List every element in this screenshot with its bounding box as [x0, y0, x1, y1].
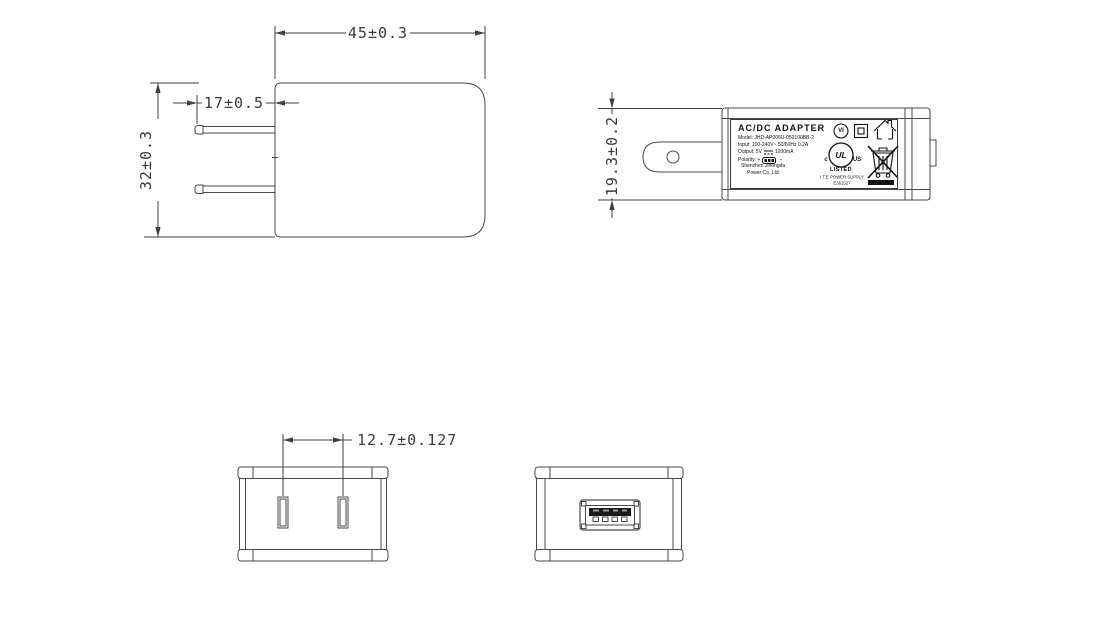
label-input-line: Input: 100-240V~ 50/60Hz 0.2A	[738, 143, 808, 148]
bottom-view-pins	[238, 434, 388, 561]
side-pin	[643, 142, 722, 172]
pin-slot-right	[338, 497, 348, 528]
ul-us-text: US	[853, 157, 861, 163]
bottom-body	[240, 479, 387, 550]
usb-view-top-cap	[535, 467, 683, 479]
usb-port	[580, 500, 640, 530]
ul-c-text: c	[824, 157, 827, 163]
side-pin-hole	[667, 151, 679, 163]
adapter-dimension-drawing: 45±0.3 17±0.5 32±0.3 19.3±0.2 12.7±0.127…	[0, 0, 1100, 621]
label-output-suffix: 1000mA	[775, 150, 794, 155]
label-company-line1: Shenzhen Jihongda	[741, 164, 785, 169]
dim-pin-spacing-12: 12.7±0.127	[355, 431, 459, 449]
label-company-line2: Power Co.,Ltd.	[747, 171, 780, 176]
dim-height-32: 32±0.3	[137, 128, 155, 192]
dimension-pin-spacing	[283, 434, 352, 496]
bottom-view-usb	[535, 467, 683, 561]
label-output-line: Output: 5V 1000mA	[738, 150, 794, 155]
dim-thickness-19: 19.3±0.2	[603, 114, 621, 198]
label-company-text2: Power Co.,Ltd.	[747, 171, 780, 176]
bottom-body-inner-lines	[246, 479, 382, 550]
ul-logo-text: UL	[835, 150, 846, 160]
label-model-text: Model: JHD-AP006U-050100BB-2	[738, 136, 814, 141]
dim-pin-17: 17±0.5	[202, 94, 266, 112]
label-model-line: Model: JHD-AP006U-050100BB-2	[738, 136, 814, 141]
ul-listed-text: LISTED	[830, 167, 852, 173]
front-pin-bottom	[203, 186, 275, 193]
front-view-body	[275, 83, 485, 237]
ul-category-text: I.T.E POWER SUPPLY	[820, 175, 864, 180]
label-title: AC/DC ADAPTER	[738, 123, 825, 133]
bottom-bottom-cap	[238, 550, 388, 562]
label-company-text1: Shenzhen Jihongda	[741, 164, 785, 169]
drawing-canvas	[0, 0, 1100, 621]
front-pin-bottom-tip	[195, 185, 203, 194]
ul-file-number: E361527	[833, 181, 850, 186]
dim-width-45: 45±0.3	[346, 24, 410, 42]
dc-voltage-icon	[764, 150, 773, 155]
efficiency-vi-text: VI	[838, 128, 844, 134]
label-input-text: Input: 100-240V~ 50/60Hz 0.2A	[738, 143, 808, 148]
label-output-prefix: Output: 5V	[738, 150, 762, 155]
front-pin-top	[203, 127, 275, 134]
pin-slot-left	[278, 497, 288, 528]
usb-view-bottom-cap	[535, 550, 683, 562]
front-pin-top-tip	[195, 126, 203, 135]
rating-label: AC/DC ADAPTER Model: JHD-AP006U-050100BB…	[730, 119, 898, 189]
bottom-top-cap	[238, 467, 388, 479]
usb-tongue	[589, 508, 631, 516]
side-usb-protrusion	[930, 140, 936, 166]
front-view	[144, 26, 485, 237]
bottom-cap-ticks	[253, 467, 372, 561]
usb-contacts	[593, 517, 627, 522]
